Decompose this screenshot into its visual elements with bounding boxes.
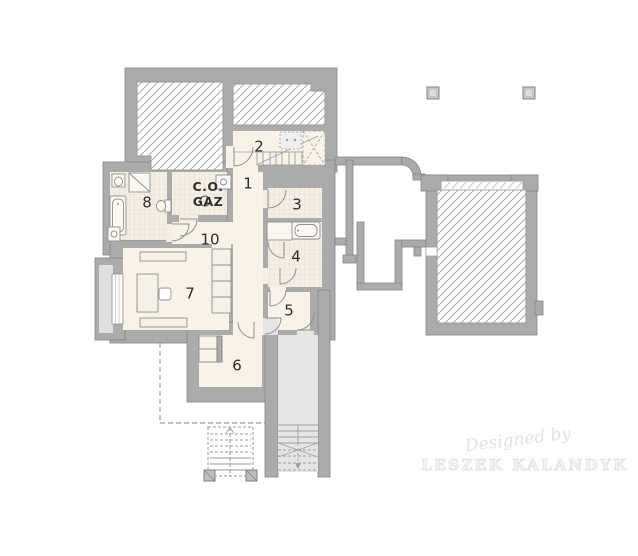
room-4-label: 4 [291, 250, 301, 265]
wall-ramp-stub-3 [335, 238, 346, 245]
pillar-inner [430, 90, 436, 96]
vent-dot [286, 139, 289, 142]
room-2-floor [233, 131, 325, 165]
door-gap [263, 318, 278, 335]
room-8-label: 8 [142, 196, 152, 211]
shelf-icon [140, 252, 186, 261]
room-2-label: 2 [254, 140, 264, 155]
sink-icon [108, 227, 120, 241]
vent-shaft [280, 132, 301, 149]
garage-side-window-icon [426, 247, 437, 256]
room-5-label: 5 [284, 304, 294, 319]
floors-layer [99, 82, 526, 472]
wall-ramp-3 [395, 240, 402, 288]
boiler-room-label-line2: GAZ [193, 194, 224, 209]
door-gap [166, 224, 172, 242]
room-unexcavated-right [233, 84, 325, 125]
chair-icon [159, 288, 171, 300]
wall-ramp-stub-2 [414, 247, 421, 256]
room-6-label: 6 [232, 359, 242, 374]
door-gap [239, 322, 256, 335]
closet-partition-wall [217, 336, 222, 362]
door-gap [270, 287, 286, 292]
window-icon [112, 274, 123, 324]
door-gap [226, 146, 234, 168]
watermark-author: LESZEK KALANDYK [415, 456, 635, 474]
wall-ramp-1 [346, 160, 353, 260]
wall-garage-bump [535, 301, 543, 315]
desk-icon [137, 274, 158, 312]
room-10-label: 10 [200, 233, 219, 248]
closet-cell [199, 336, 217, 349]
room-7-label: 7 [185, 287, 195, 302]
wall-ramp-2 [357, 222, 364, 288]
wall-ramp-1-foot [343, 255, 356, 263]
floor-plan-canvas: 1 2 3 4 5 6 7 8 10 C.O. GAZ Designed by … [0, 0, 638, 556]
vent-dot [294, 139, 297, 142]
shelf-icon [140, 318, 187, 327]
toilet-icon [112, 174, 125, 187]
bathtub-drain [297, 230, 299, 232]
boiler-room-label: C.O. GAZ [192, 179, 223, 209]
wall-ramp-curve [402, 157, 421, 176]
boiler-room-label-line1: C.O. [192, 179, 223, 194]
closet-cell [199, 349, 217, 362]
window-well-floor [99, 265, 113, 333]
pillar-inner [526, 90, 532, 96]
wall-ramp-bottom [357, 283, 402, 290]
wall-ramp-top [335, 157, 402, 165]
wall-ramp-stub [402, 240, 426, 247]
door-gap [263, 190, 268, 208]
closet-room4 [267, 222, 292, 240]
toilet-icon [157, 201, 166, 212]
wall-stairwell-right [318, 290, 330, 477]
wall-stairwell-left [265, 332, 278, 477]
room-1-label: 1 [243, 177, 253, 192]
bathtub-drain [117, 203, 119, 205]
stairwell-floor [278, 335, 318, 472]
room-3-label: 3 [292, 198, 302, 213]
door-gap [297, 330, 314, 340]
door-gap [263, 268, 268, 284]
garage-floor [437, 190, 526, 323]
pillars [427, 87, 535, 99]
